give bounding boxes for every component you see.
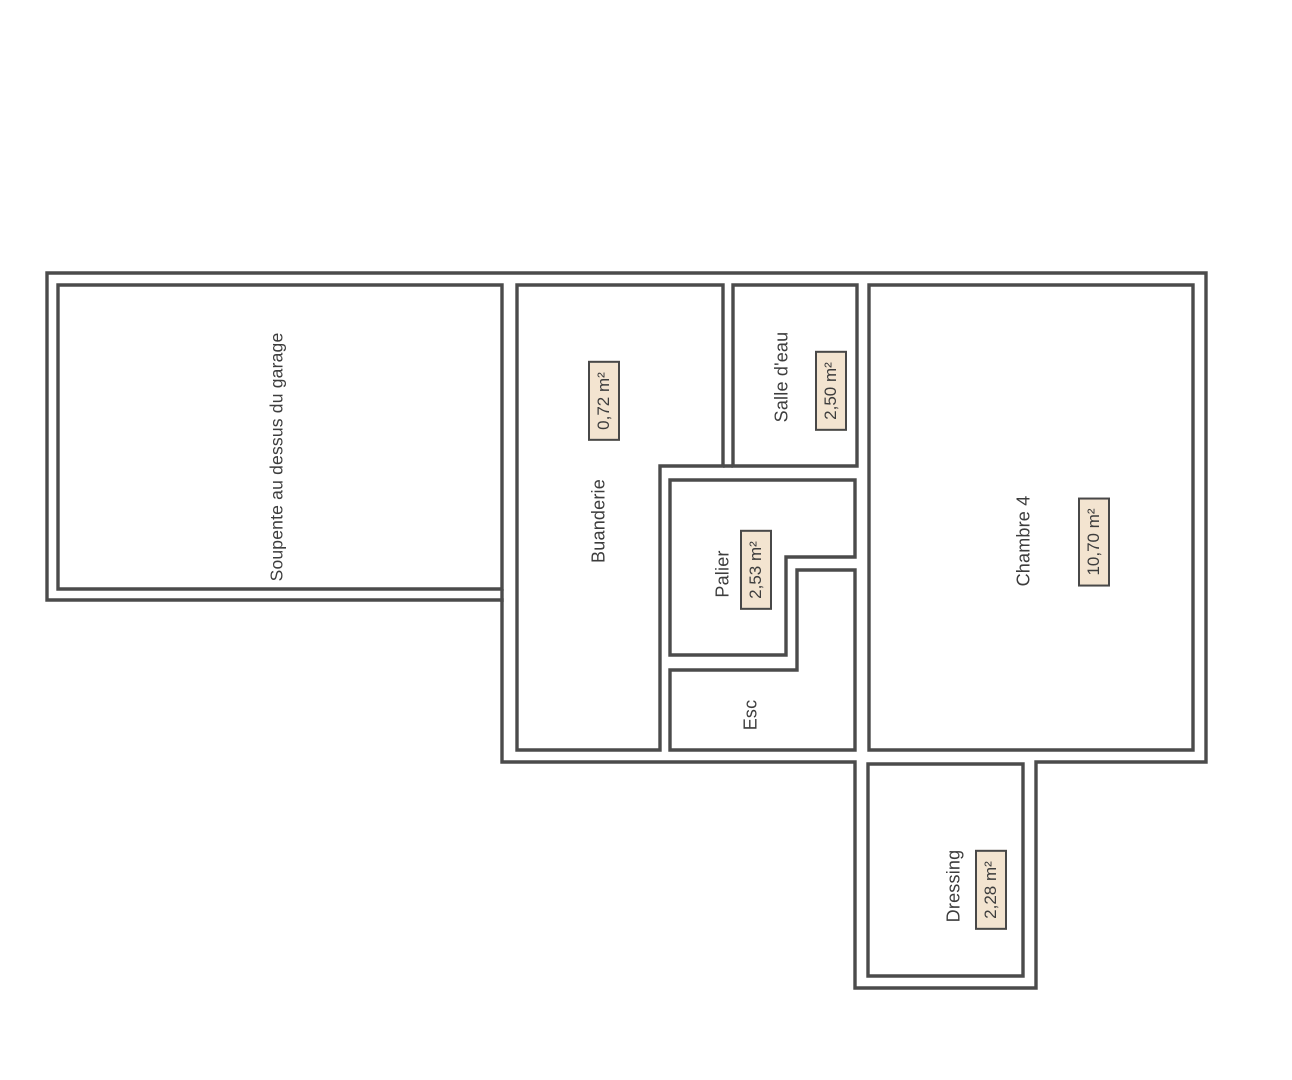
room-label-chambre-4: Chambre 4 [1014, 496, 1035, 587]
room-label-esc: Esc [741, 700, 762, 731]
room-label-dressing: Dressing [944, 850, 965, 923]
floorplan-canvas: Soupente au dessus du garageBuanderie0,7… [0, 0, 1292, 1080]
area-badge-dressing: 2,28 m² [975, 850, 1007, 930]
room-label-soupente: Soupente au dessus du garage [267, 333, 288, 582]
room-label-buanderie: Buanderie [589, 479, 610, 563]
area-badge-buanderie: 0,72 m² [588, 361, 620, 441]
room-label-palier: Palier [713, 550, 734, 597]
room-label-salle-deau: Salle d'eau [772, 332, 793, 423]
area-badge-chambre-4: 10,70 m² [1078, 497, 1110, 586]
wall-segment-step [502, 466, 733, 602]
area-badge-salle-deau: 2,50 m² [815, 351, 847, 431]
wall-envelope [47, 273, 1206, 988]
room-outline-buanderie [517, 285, 723, 750]
area-badge-palier: 2,53 m² [740, 530, 772, 610]
